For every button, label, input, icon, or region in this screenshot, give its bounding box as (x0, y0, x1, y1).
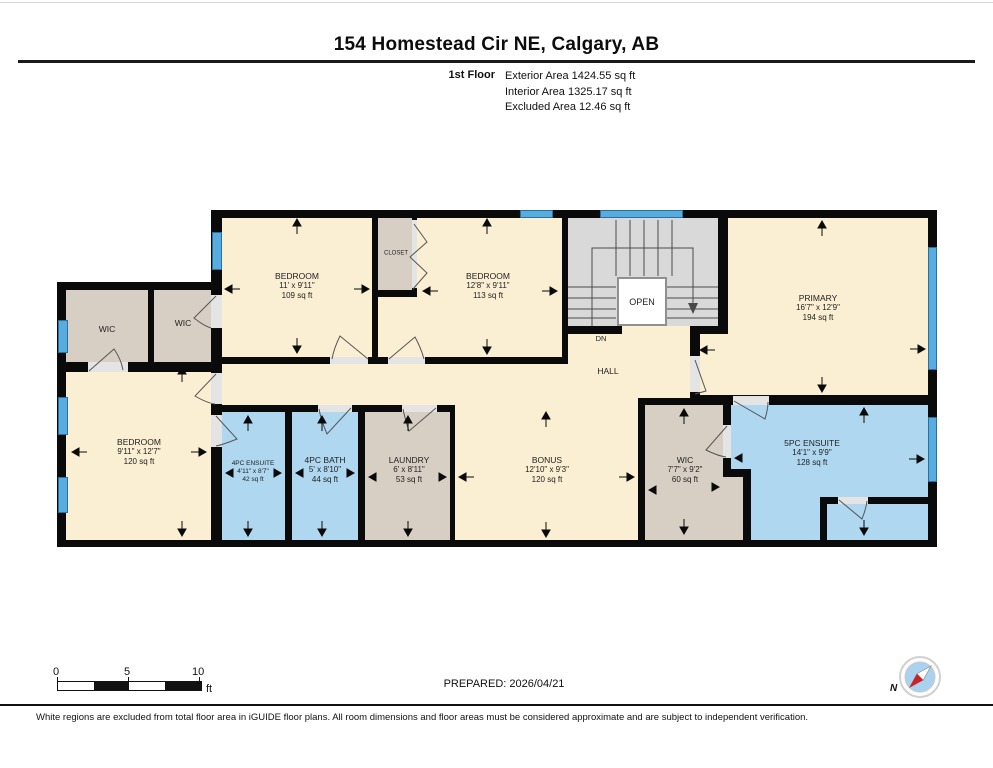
label-4pc-bath: 4PC BATH 5' x 8'10" 44 sq ft (305, 455, 346, 485)
scale-bar-segment (94, 682, 129, 690)
door-opening-4pc-ensuite (211, 415, 222, 447)
label-5pc-ensuite: 5PC ENSUITE 14'1" x 9'9" 128 sq ft (784, 438, 840, 468)
label-laundry: LAUNDRY 6' x 8'11" 53 sq ft (389, 455, 429, 485)
label-wic-primary: WIC 7'7" x 9'2" 60 sq ft (668, 455, 703, 485)
page-top-border (0, 2, 993, 3)
door-opening-laundry (402, 405, 437, 412)
label-wic-mid: WIC (175, 318, 192, 328)
hall-under-stairs-b (617, 326, 690, 365)
door-opening-wic-left (88, 362, 128, 372)
compass-north-label: N (890, 683, 897, 694)
window (928, 247, 937, 370)
room-bedroom-2-ext (378, 297, 417, 357)
wall-wc-left (820, 497, 827, 540)
door-opening-wc (838, 497, 868, 504)
wall-stairs-bottom (562, 326, 622, 334)
title-divider (18, 60, 975, 63)
disclaimer-text: White regions are excluded from total fl… (36, 712, 966, 723)
room-5pc-ensuite (731, 405, 928, 540)
exterior-area: Exterior Area 1424.55 sq ft (505, 69, 635, 85)
label-hall: HALL (597, 366, 618, 376)
scale-unit: ft (206, 683, 212, 695)
label-bedroom-2: BEDROOM 12'8" x 9'11" 113 sq ft (466, 271, 510, 301)
window (58, 397, 68, 435)
floor-label: 1st Floor (420, 69, 495, 81)
label-bonus: BONUS 12'10" x 9'3" 120 sq ft (525, 455, 569, 485)
door-opening-bedroom-1 (330, 357, 368, 364)
excluded-area: Excluded Area 12.46 sq ft (505, 100, 635, 116)
window (928, 417, 937, 482)
label-4pc-ensuite: 4PC ENSUITE 4'11" x 8'7" 42 sq ft (232, 460, 275, 484)
wall-wc-top (820, 497, 928, 504)
label-open: OPEN (629, 297, 655, 307)
door-opening-closet (412, 220, 417, 288)
door-opening-4pc-bath (318, 405, 352, 412)
door-opening-bedroom-2 (388, 357, 425, 364)
door-opening-wic-mid (211, 295, 222, 328)
label-bedroom-1: BEDROOM 11' x 9'11" 109 sq ft (275, 271, 319, 301)
door-opening-primary (690, 356, 700, 392)
door-opening-bedroom-3 (211, 373, 222, 404)
window (600, 210, 683, 218)
window (520, 210, 553, 218)
label-bedroom-3: BEDROOM 9'11" x 12'7" 120 sq ft (117, 437, 161, 467)
room-wic-primary-ext (723, 477, 743, 540)
room-primary-ext (700, 334, 728, 395)
scale-bar (57, 681, 202, 691)
footer-divider (0, 704, 993, 706)
label-primary: PRIMARY 16'7" x 12'9" 194 sq ft (796, 293, 840, 323)
window (58, 320, 68, 353)
hall-under-stairs-a (568, 334, 617, 365)
prepared-date: PREPARED: 2026/04/21 (444, 678, 565, 690)
scale-bar-segment (165, 682, 201, 690)
label-dn: DN (596, 334, 607, 344)
page-title: 154 Homestead Cir NE, Calgary, AB (0, 34, 993, 56)
compass-icon (900, 657, 940, 697)
door-opening-5pc-ensuite (733, 396, 769, 405)
door-opening-wic-primary (723, 425, 731, 458)
floor-area-stats: Exterior Area 1424.55 sq ft Interior Are… (505, 69, 635, 116)
window (58, 477, 68, 513)
wall-wic-step (723, 469, 751, 477)
hall-corridor-east (638, 364, 690, 398)
room-bonus (455, 364, 638, 540)
hall-corridor-west (222, 364, 455, 405)
plan-notch-cutout (57, 210, 211, 282)
floor-plan-page: 154 Homestead Cir NE, Calgary, AB 1st Fl… (0, 0, 993, 768)
window (212, 232, 222, 270)
label-closet: CLOSET (384, 251, 408, 258)
wall-wic-ext-right (743, 477, 751, 540)
label-wic-left: WIC (99, 324, 116, 334)
interior-area: Interior Area 1325.17 sq ft (505, 85, 635, 101)
